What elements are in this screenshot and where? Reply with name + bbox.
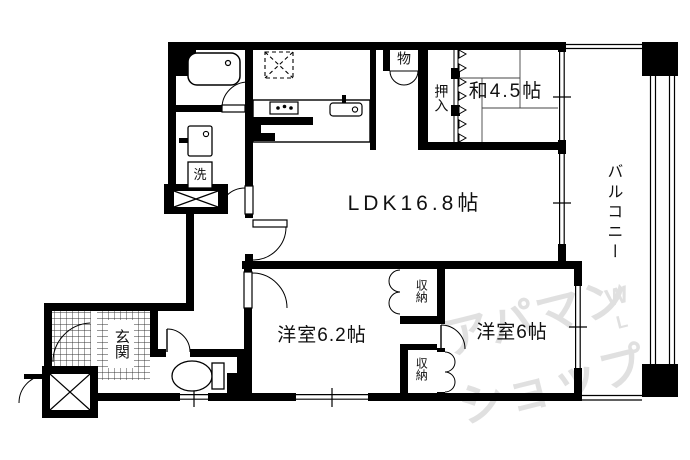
room-label-western-62: 洋室6.2帖 bbox=[277, 326, 366, 346]
toilet-door bbox=[167, 329, 190, 352]
washbasin bbox=[179, 126, 212, 156]
window-bedroom6 bbox=[569, 286, 587, 368]
pipe-shaft-icon bbox=[174, 191, 218, 207]
bedroom6-door bbox=[441, 325, 465, 349]
bathtub bbox=[188, 53, 240, 85]
floor-plan: アパマン ショップ W L bbox=[0, 0, 690, 460]
storage-label-shuno-top: 収納 bbox=[415, 279, 428, 303]
room-label-ldk: LDK16.8帖 bbox=[348, 193, 483, 215]
oshiire-fusuma bbox=[451, 50, 466, 142]
window-japanese-room bbox=[553, 52, 571, 140]
porch-tile bbox=[52, 311, 91, 366]
bathroom-door bbox=[222, 82, 248, 112]
storage-label-mono: 物 bbox=[397, 52, 411, 67]
room-label-entrance: 玄関 bbox=[113, 329, 129, 359]
storage-label-shuno-bottom: 収納 bbox=[415, 357, 428, 381]
room-label-japanese-room: 和4.5帖 bbox=[469, 82, 543, 102]
range-hood-icon bbox=[265, 52, 293, 78]
closet-bifold-top bbox=[389, 270, 400, 314]
room-label-balcony: バルコニー bbox=[604, 163, 621, 263]
floorplan-drawing bbox=[0, 0, 690, 460]
room-label-western-6: 洋室6帖 bbox=[476, 323, 548, 343]
storage-double-doors bbox=[390, 71, 418, 85]
storage-label-oshiire: 押入 bbox=[434, 84, 449, 112]
elevator-shaft-icon bbox=[50, 374, 90, 410]
bedroom62-door bbox=[244, 272, 287, 308]
fixture-label-laundry: 洗 bbox=[193, 168, 206, 182]
toilet bbox=[172, 361, 224, 391]
closet-bifold-bottom bbox=[445, 352, 455, 392]
window-ldk bbox=[553, 154, 571, 244]
ldk-door bbox=[253, 220, 287, 260]
